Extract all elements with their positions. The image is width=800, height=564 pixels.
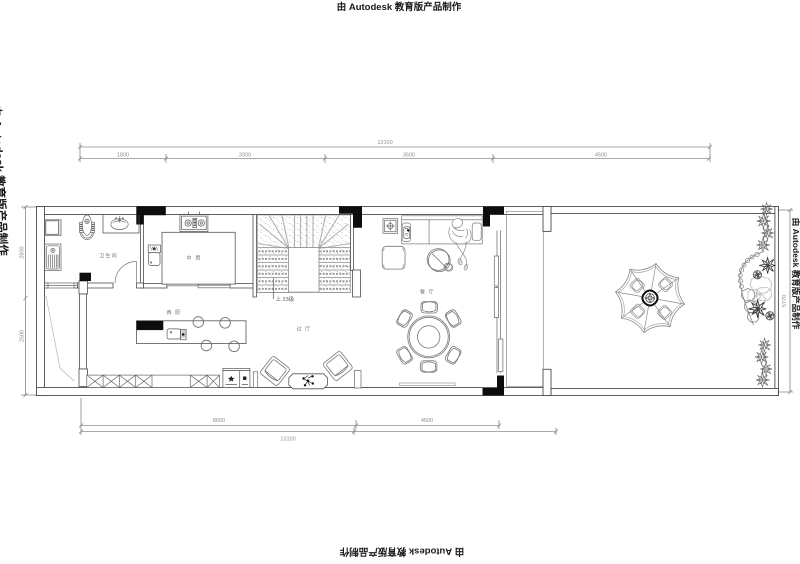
svg-text:中厨: 中厨	[186, 255, 204, 262]
svg-text:5770: 5770	[782, 295, 788, 307]
svg-text:由 Autodesk 教育版产品制作: 由 Autodesk 教育版产品制作	[339, 545, 464, 557]
svg-text:1800: 1800	[117, 153, 129, 159]
svg-text:4500: 4500	[595, 153, 607, 159]
svg-text:4500: 4500	[421, 418, 433, 424]
svg-text:13100: 13100	[280, 437, 295, 443]
svg-text:西厨: 西厨	[166, 310, 183, 316]
svg-text:3300: 3300	[239, 153, 251, 159]
svg-text:由 Autodesk 教育版产品制作: 由 Autodesk 教育版产品制作	[791, 218, 800, 330]
svg-text:8600: 8600	[213, 418, 225, 424]
svg-text:13100: 13100	[377, 140, 392, 146]
svg-text:由 Autodesk 教育版产品制作: 由 Autodesk 教育版产品制作	[337, 1, 462, 13]
svg-text:过厅: 过厅	[296, 326, 313, 333]
svg-text:2800: 2800	[20, 246, 26, 258]
svg-text:2500: 2500	[20, 330, 26, 342]
svg-text:卫生间: 卫生间	[99, 253, 118, 260]
svg-text:餐厅: 餐厅	[420, 289, 437, 296]
svg-text:3500: 3500	[403, 153, 415, 159]
